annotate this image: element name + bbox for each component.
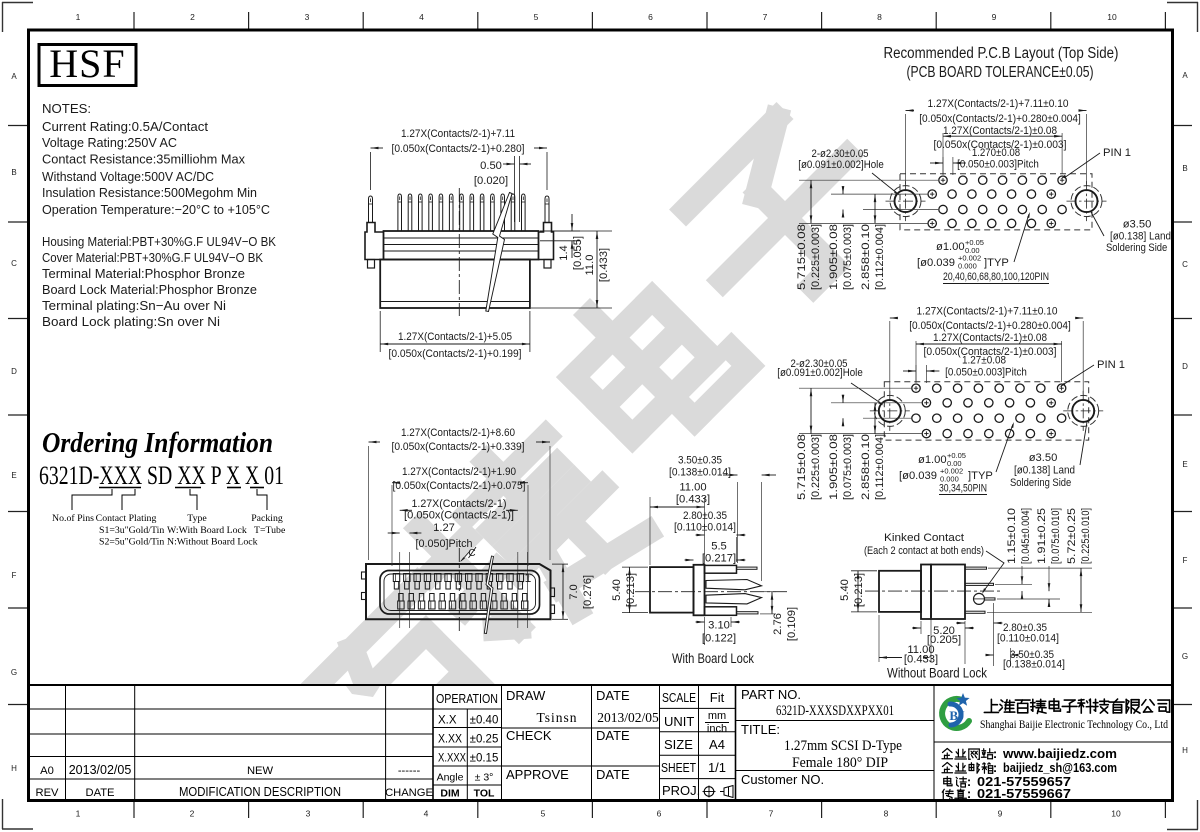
svg-text:0.000: 0.000 (958, 262, 977, 271)
svg-text:6: 6 (657, 809, 662, 819)
svg-text:± 3°: ± 3° (475, 772, 494, 784)
svg-text:6321D-XXXSDXXPXX01: 6321D-XXXSDXXPXX01 (776, 703, 894, 719)
svg-text:Packing: Packing (251, 513, 283, 524)
svg-text:A: A (1182, 71, 1188, 80)
svg-text:[ø0.091±0.002]Hole: [ø0.091±0.002]Hole (798, 159, 884, 171)
svg-text:NOTES:: NOTES: (42, 101, 91, 116)
svg-text:APPROVE: APPROVE (506, 767, 569, 782)
svg-text:No.of Pins: No.of Pins (52, 513, 94, 524)
svg-text:Current Rating:0.5A/Contact: Current Rating:0.5A/Contact (42, 119, 208, 134)
svg-text:ø1.00: ø1.00 (936, 241, 965, 253)
svg-text:REV: REV (35, 787, 59, 799)
svg-text:[0.050x(Contacts/2-1)+0.339]: [0.050x(Contacts/2-1)+0.339] (392, 441, 525, 453)
svg-text:1/1: 1/1 (708, 760, 726, 775)
svg-text:5.715±0.08: 5.715±0.08 (796, 434, 808, 500)
svg-text:Board Lock Material:Phosphor B: Board Lock Material:Phosphor Bronze (42, 282, 257, 297)
svg-text:7: 7 (763, 12, 768, 22)
svg-text:Without Board Lock: Without Board Lock (887, 666, 987, 681)
svg-text:[0.050±0.003]Pitch: [0.050±0.003]Pitch (945, 366, 1027, 378)
svg-text:5.40: 5.40 (611, 579, 623, 601)
svg-text:PROJ.: PROJ. (662, 783, 700, 798)
svg-text:Kinked Contact: Kinked Contact (884, 532, 965, 544)
svg-text:[0.075±0.010]: [0.075±0.010] (1050, 508, 1062, 564)
svg-text:[ø0.138] Land: [ø0.138] Land (1014, 465, 1075, 477)
svg-text:1: 1 (76, 12, 81, 22)
svg-text::: : (967, 786, 971, 801)
svg-text:[0.075±0.003]: [0.075±0.003] (842, 224, 854, 290)
svg-text:PART NO.: PART NO. (741, 687, 801, 702)
svg-text:]TYP: ]TYP (984, 257, 1009, 269)
svg-text:Operation Temperature:−20°C to: Operation Temperature:−20°C to +105°C (42, 202, 270, 217)
svg-text:Withstand Voltage:500V AC/DC: Withstand Voltage:500V AC/DC (42, 169, 214, 184)
svg-text:[0.050x(Contacts/2-1)+0.199]: [0.050x(Contacts/2-1)+0.199] (389, 348, 522, 360)
svg-text:Cover Material:PBT+30%G.F UL94: Cover Material:PBT+30%G.F UL94V−O BK (42, 250, 263, 265)
svg-text:[ø0.039: [ø0.039 (917, 257, 955, 269)
svg-text:E: E (1182, 460, 1187, 469)
svg-text:[0.045±0.004]: [0.045±0.004] (1020, 508, 1032, 564)
svg-text:With Board Lock: With Board Lock (672, 651, 754, 666)
svg-text:1.27X(Contacts/2-1)+8.60: 1.27X(Contacts/2-1)+8.60 (401, 427, 515, 439)
svg-text:[0.138±0.014]: [0.138±0.014] (1003, 659, 1065, 671)
svg-text:5.715±0.08: 5.715±0.08 (796, 224, 808, 290)
svg-text:1.905±0.08: 1.905±0.08 (828, 434, 840, 500)
svg-text:[0.433]: [0.433] (598, 248, 610, 282)
svg-text:3.10: 3.10 (708, 620, 730, 632)
svg-text:±0.40: ±0.40 (470, 715, 499, 727)
svg-text:DATE: DATE (596, 767, 630, 782)
svg-text:D: D (1182, 362, 1188, 371)
svg-text:ø3.50: ø3.50 (1123, 219, 1152, 231)
svg-text:UNIT: UNIT (664, 714, 694, 729)
svg-text:1.27X(Contacts/2-1)±0.08: 1.27X(Contacts/2-1)±0.08 (933, 332, 1047, 344)
svg-text:1.27X(Contacts/2-1)+7.11: 1.27X(Contacts/2-1)+7.11 (401, 128, 515, 140)
svg-text:C: C (1182, 260, 1188, 269)
svg-text:Terminal plating:Sn−Au over Ni: Terminal plating:Sn−Au over Ni (42, 298, 226, 313)
svg-text:(PCB BOARD TOLERANCE±0.05): (PCB BOARD TOLERANCE±0.05) (907, 64, 1094, 81)
svg-text:inch: inch (707, 723, 727, 735)
svg-text:1.27X(Contacts/2-1)±0.08: 1.27X(Contacts/2-1)±0.08 (943, 125, 1057, 137)
svg-text:[0.217]: [0.217] (702, 553, 736, 565)
svg-text:X.X: X.X (438, 715, 457, 727)
svg-text:7: 7 (769, 809, 774, 819)
svg-text:DATE: DATE (596, 688, 630, 703)
svg-text:B: B (1182, 164, 1187, 173)
svg-text:DATE: DATE (596, 728, 630, 743)
svg-text:Shanghai Baijie Electronic Tec: Shanghai Baijie Electronic Technology Co… (980, 717, 1168, 731)
svg-text:±0.15: ±0.15 (470, 753, 499, 765)
svg-text:A0: A0 (40, 765, 54, 777)
svg-text:2.858±0.10: 2.858±0.10 (860, 224, 872, 290)
svg-text:Recommended P.C.B Layout (Top: Recommended P.C.B Layout (Top Side) (884, 45, 1119, 62)
svg-text:TITLE:: TITLE: (741, 722, 780, 737)
svg-text:[0.138±0.014]: [0.138±0.014] (669, 467, 731, 479)
svg-text:G: G (1182, 652, 1188, 661)
svg-text:2: 2 (190, 809, 195, 819)
svg-text:[0.276]: [0.276] (582, 575, 594, 609)
svg-text:1.91±0.25: 1.91±0.25 (1036, 508, 1048, 564)
svg-text:1.27: 1.27 (433, 522, 455, 534)
svg-text:Insulation Resistance:500Megoh: Insulation Resistance:500Megohm Min (42, 185, 257, 200)
svg-text:[0.110±0.014]: [0.110±0.014] (674, 522, 736, 534)
svg-text:4: 4 (419, 12, 424, 22)
svg-text:A: A (11, 72, 17, 81)
svg-text:DIM: DIM (440, 788, 460, 800)
svg-text:3.50±0.35: 3.50±0.35 (678, 455, 722, 467)
svg-text:5: 5 (541, 809, 546, 819)
svg-text:[0.433]: [0.433] (676, 494, 710, 506)
svg-text:SCALE: SCALE (662, 691, 696, 705)
svg-text:Angle: Angle (437, 772, 464, 784)
svg-text:[ø0.039: [ø0.039 (899, 470, 937, 482)
svg-text:ø1.00: ø1.00 (918, 454, 947, 466)
svg-text:20,40,60,68,80,100,120PIN: 20,40,60,68,80,100,120PIN (943, 271, 1049, 283)
svg-text:Ordering Information: Ordering Information (42, 428, 273, 459)
svg-text:1: 1 (525, 571, 532, 585)
svg-text:[0.225±0.003]: [0.225±0.003] (810, 434, 822, 500)
svg-text:1: 1 (76, 809, 81, 819)
svg-text:1.27mm SCSI D-Type: 1.27mm SCSI D-Type (784, 738, 902, 754)
svg-text:1.27X(Contacts/2-1)+7.11±0.10: 1.27X(Contacts/2-1)+7.11±0.10 (928, 98, 1069, 110)
svg-text:baijiedz_sh@163.com: baijiedz_sh@163.com (1003, 760, 1117, 775)
svg-text:±0.25: ±0.25 (470, 734, 499, 746)
svg-text:CHECK: CHECK (506, 728, 552, 743)
svg-text:SIZE: SIZE (664, 737, 693, 752)
svg-text:5.5: 5.5 (711, 541, 727, 553)
svg-text:Fit: Fit (710, 690, 725, 705)
svg-text:Soldering Side: Soldering Side (1106, 242, 1167, 254)
svg-text:DATE: DATE (85, 787, 114, 799)
svg-text:Terminal Material:Phosphor Bro: Terminal Material:Phosphor Bronze (42, 266, 245, 281)
svg-text:X.XX: X.XX (438, 734, 462, 746)
svg-text:6321D-XXX SD XX P X X 01: 6321D-XXX SD XX P X X 01 (39, 461, 284, 490)
svg-text:[0.020]: [0.020] (474, 175, 508, 187)
svg-text:C: C (11, 259, 17, 268)
svg-text:[0.050x(Contacts/2-1)+0.280±0.: [0.050x(Contacts/2-1)+0.280±0.004] (919, 113, 1081, 125)
svg-text:ø3.50: ø3.50 (1029, 452, 1058, 464)
svg-text:Female 180° DIP: Female 180° DIP (792, 755, 888, 771)
svg-text:5.72±0.25: 5.72±0.25 (1066, 508, 1078, 564)
svg-text:(Each 2 contact at both ends): (Each 2 contact at both ends) (864, 545, 984, 557)
svg-text:[0.112±0.004]: [0.112±0.004] (874, 434, 886, 500)
svg-text:2013/02/05: 2013/02/05 (69, 763, 132, 777)
svg-text:1.27X(Contacts/2-1)+5.05: 1.27X(Contacts/2-1)+5.05 (398, 331, 512, 343)
svg-text:S1=3u"Gold/Tin: S1=3u"Gold/Tin (99, 525, 164, 536)
svg-text:1.27X(Contacts/2-1)+7.11±0.10: 1.27X(Contacts/2-1)+7.11±0.10 (917, 306, 1058, 318)
svg-text:[0.050±0.003]Pitch: [0.050±0.003]Pitch (957, 159, 1039, 171)
svg-text:3: 3 (305, 12, 310, 22)
svg-text:[0.050]Pitch: [0.050]Pitch (416, 538, 473, 550)
svg-text:Tsinsn: Tsinsn (536, 710, 577, 725)
svg-text:D: D (11, 367, 17, 376)
svg-text:F: F (12, 571, 17, 580)
svg-text:1.27X(Contacts/2-1)+1.90: 1.27X(Contacts/2-1)+1.90 (402, 466, 516, 478)
svg-text:Soldering Side: Soldering Side (1010, 477, 1071, 489)
svg-text:A4: A4 (709, 737, 725, 752)
svg-text:1.27±0.08: 1.27±0.08 (962, 355, 1006, 367)
svg-text:TOL: TOL (474, 788, 495, 800)
svg-text:[0.050x(Contacts/2-1)]: [0.050x(Contacts/2-1)] (404, 509, 514, 521)
svg-text:7.0: 7.0 (568, 584, 580, 600)
svg-text:6: 6 (648, 12, 653, 22)
svg-text:HSF: HSF (49, 41, 125, 86)
svg-text:[0.225±0.010]: [0.225±0.010] (1080, 508, 1092, 564)
svg-text:NEW: NEW (247, 765, 274, 777)
svg-text:www.baijiedz.com: www.baijiedz.com (1002, 746, 1117, 761)
svg-text:Customer NO.: Customer NO. (741, 772, 824, 787)
svg-text:T=Tube: T=Tube (254, 525, 286, 536)
svg-text:[0.050x(Contacts/2-1)+0.280]: [0.050x(Contacts/2-1)+0.280] (392, 143, 525, 155)
svg-text::: : (993, 746, 997, 761)
svg-text:SHEET: SHEET (661, 761, 696, 775)
svg-text:9: 9 (992, 12, 997, 22)
svg-text:[0.213]: [0.213] (625, 573, 637, 607)
svg-text:Housing Material:PBT+30%G.F UL: Housing Material:PBT+30%G.F UL94V−O BK (42, 234, 276, 249)
svg-text:10: 10 (1107, 12, 1117, 22)
svg-text:2.80±0.35: 2.80±0.35 (683, 510, 727, 522)
svg-text:2.858±0.10: 2.858±0.10 (860, 434, 872, 500)
svg-text:5: 5 (534, 12, 539, 22)
svg-text:[0.110±0.014]: [0.110±0.014] (997, 633, 1059, 645)
svg-text:4: 4 (424, 809, 429, 819)
svg-text:Contact Resistance:35milliohm: Contact Resistance:35milliohm Max (42, 152, 245, 167)
svg-text:BJ: BJ (949, 708, 965, 723)
svg-text:0.50: 0.50 (480, 160, 502, 172)
svg-text:[0.109]: [0.109] (786, 607, 798, 641)
svg-text:5.40: 5.40 (839, 579, 851, 601)
svg-text:1.270±0.08: 1.270±0.08 (972, 147, 1020, 159)
svg-text:1.27X(Contacts/2-1): 1.27X(Contacts/2-1) (412, 498, 507, 510)
svg-text:3: 3 (306, 809, 311, 819)
svg-text:021-57559667: 021-57559667 (977, 786, 1071, 801)
svg-text:[0.213]: [0.213] (853, 573, 865, 607)
svg-text:10: 10 (1111, 809, 1121, 819)
svg-text:X.XXX: X.XXX (438, 753, 466, 765)
svg-text:[0.050x(Contacts/2-1)+0.075]: [0.050x(Contacts/2-1)+0.075] (393, 480, 526, 492)
svg-text:8: 8 (884, 809, 889, 819)
svg-text:N:Without Board Lock: N:Without Board Lock (167, 537, 258, 548)
svg-text:B: B (11, 168, 16, 177)
svg-text:Board Lock plating:Sn over Ni: Board Lock plating:Sn over Ni (42, 314, 220, 329)
svg-text:Type: Type (187, 513, 207, 524)
svg-text:[0.225±0.003]: [0.225±0.003] (810, 224, 822, 290)
svg-text:------: ------ (398, 765, 421, 777)
svg-text:30,34,50PIN: 30,34,50PIN (939, 483, 987, 495)
svg-text:PIN 1: PIN 1 (1097, 359, 1125, 371)
svg-text:S2=5u"Gold/Tin: S2=5u"Gold/Tin (99, 537, 164, 548)
svg-text:mm: mm (708, 710, 726, 722)
svg-text:W:With Board Lock: W:With Board Lock (167, 525, 247, 536)
svg-text:[0.050x(Contacts/2-1)+0.280±0.: [0.050x(Contacts/2-1)+0.280±0.004] (909, 320, 1071, 332)
svg-text:CHANGE: CHANGE (385, 787, 433, 799)
svg-text:1.905±0.08: 1.905±0.08 (828, 224, 840, 290)
svg-text:[0.433]: [0.433] (904, 654, 938, 666)
svg-text:H: H (11, 764, 17, 773)
svg-text:[0.055]: [0.055] (572, 236, 584, 270)
svg-text:F: F (1183, 556, 1188, 565)
svg-text:[0.112±0.004]: [0.112±0.004] (874, 224, 886, 290)
svg-text:[0.122]: [0.122] (702, 633, 736, 645)
svg-text:1.15±0.10: 1.15±0.10 (1006, 508, 1018, 564)
svg-text:[ø0.091±0.002]Hole: [ø0.091±0.002]Hole (777, 367, 863, 379)
svg-text:H: H (1182, 746, 1188, 755)
svg-text:PIN 1: PIN 1 (1103, 147, 1131, 159)
svg-text:2.76: 2.76 (772, 613, 784, 635)
svg-text:11.00: 11.00 (679, 482, 706, 494)
svg-text:[ø0.138] Land: [ø0.138] Land (1110, 231, 1171, 243)
svg-text:Voltage Rating:250V AC: Voltage Rating:250V AC (42, 135, 177, 150)
svg-text:8: 8 (877, 12, 882, 22)
svg-text:DRAW: DRAW (506, 688, 546, 703)
svg-text:2013/02/05: 2013/02/05 (597, 710, 659, 725)
svg-text:MODIFICATION DESCRIPTION: MODIFICATION DESCRIPTION (179, 785, 341, 799)
svg-text:OPERATION: OPERATION (436, 692, 498, 706)
svg-text:E: E (11, 471, 16, 480)
svg-text:]TYP: ]TYP (968, 470, 993, 482)
svg-text:Contact Plating: Contact Plating (96, 513, 157, 524)
svg-text:[0.075±0.003]: [0.075±0.003] (842, 434, 854, 500)
svg-text:11.0: 11.0 (584, 255, 596, 276)
svg-text:1.4: 1.4 (558, 245, 570, 261)
svg-text:G: G (11, 668, 17, 677)
svg-text::: : (993, 760, 997, 775)
svg-text:2: 2 (190, 12, 195, 22)
svg-text:9: 9 (998, 809, 1003, 819)
